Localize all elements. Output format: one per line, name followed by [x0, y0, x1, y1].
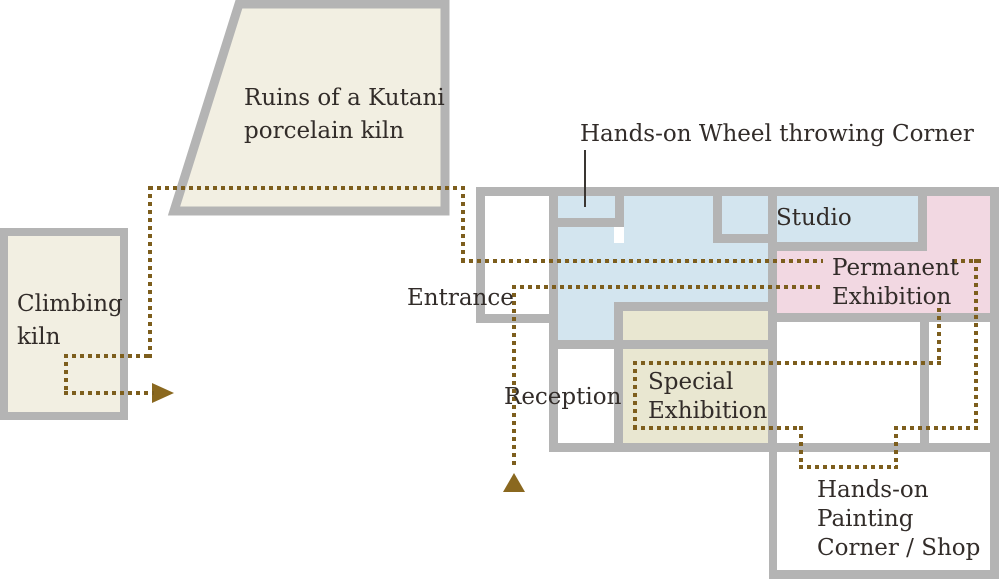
entrance-label: Entrance [407, 284, 514, 313]
shop-label: Hands-on Painting Corner / Shop [817, 476, 980, 563]
route-arrow-right-icon [152, 383, 174, 403]
route-dots [633, 426, 803, 430]
wall-lower-rooms-divider [920, 322, 929, 443]
route-dots [799, 465, 898, 469]
route-dots [633, 361, 637, 430]
route-dots [149, 186, 465, 190]
wall-shop-bottom [769, 570, 999, 579]
wall-permanent-bottom [768, 313, 999, 322]
wall-entrance-bottom [476, 314, 558, 323]
route-dots [148, 186, 152, 358]
ruins-label: Ruins of a Kutani porcelain kiln [244, 82, 445, 148]
special-exhibition-label: Special Exhibition [648, 368, 767, 426]
climbing-kiln-label: Climbing kiln [17, 288, 123, 354]
studio-label: Studio [776, 204, 852, 233]
route-dots [894, 426, 898, 469]
route-dots [512, 285, 823, 289]
wall-special-left [614, 302, 623, 452]
route-dots [64, 354, 152, 358]
facility-route-map: Ruins of a Kutani porcelain kiln Climbin… [0, 0, 999, 579]
room-workshop-small [722, 196, 768, 234]
wall-building-bottom [549, 443, 999, 452]
wall-entrance-right [549, 196, 558, 452]
permanent-exhibition-label: Permanent Exhibition [832, 254, 959, 312]
route-dots [64, 354, 68, 395]
route-dots [799, 426, 803, 469]
wall-special-right [768, 322, 777, 443]
wall-strip-top [614, 302, 777, 311]
wheel-corner-label: Hands-on Wheel throwing Corner [580, 120, 974, 149]
wall-corner-box-bottom [558, 218, 624, 227]
room-wheel-throwing-corner [558, 196, 615, 218]
route-dots [974, 259, 978, 430]
wall-studio-bottom [777, 242, 927, 251]
route-dots [937, 308, 941, 365]
route-dots [461, 186, 465, 263]
route-dots [633, 361, 941, 365]
wheel-corner-leader-line [584, 150, 586, 207]
reception-label: Reception [504, 383, 621, 412]
wall-studio-right [918, 187, 927, 251]
route-arrow-up-icon [503, 473, 525, 492]
room-workshop-main [558, 243, 768, 302]
room-special-exhibition-strip [623, 311, 768, 340]
wall-reception-top [549, 340, 777, 349]
wall-shop-left [769, 452, 777, 579]
route-dots [894, 426, 978, 430]
route-dots [461, 259, 823, 263]
wall-outer-right [990, 187, 999, 579]
route-dots [64, 391, 154, 395]
